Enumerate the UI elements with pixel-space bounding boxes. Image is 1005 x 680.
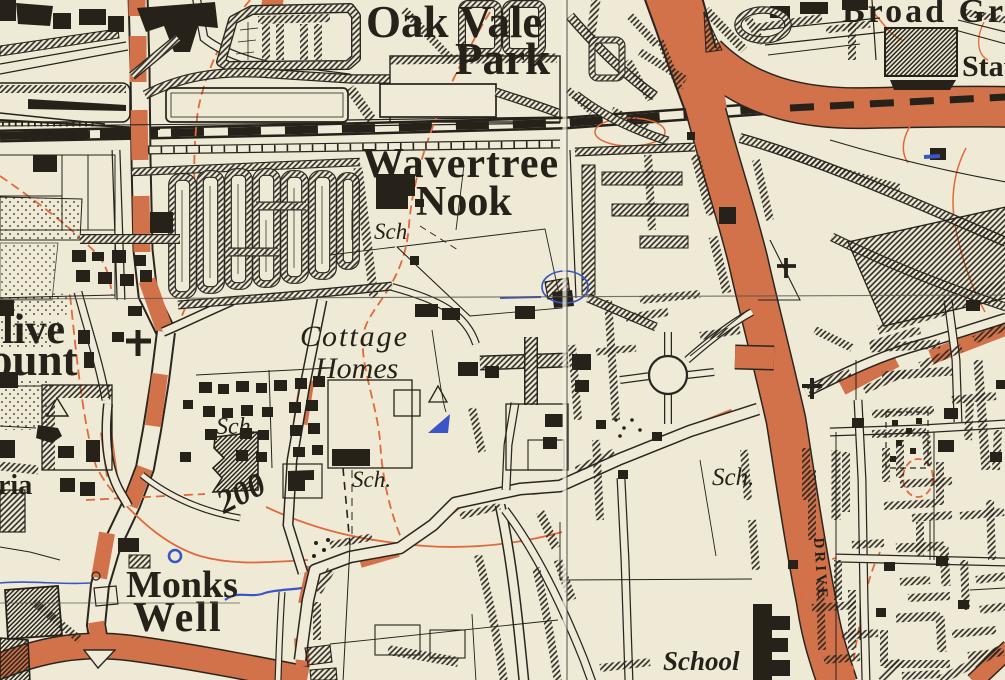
svg-text:Park: Park (455, 34, 550, 84)
svg-text:Cottage: Cottage (300, 320, 409, 353)
svg-text:Sch.: Sch. (712, 464, 754, 491)
svg-text:Sch.: Sch. (216, 414, 257, 440)
svg-text:Broad Gr: Broad Gr (842, 0, 1005, 30)
svg-text:School: School (663, 646, 740, 676)
svg-text:Nook: Nook (416, 179, 512, 225)
svg-text:ount: ount (0, 335, 78, 385)
svg-text:ria: ria (0, 470, 32, 501)
svg-text:Sch: Sch (374, 219, 407, 244)
svg-text:Sch.: Sch. (352, 467, 391, 492)
svg-text:Well: Well (133, 595, 223, 641)
svg-text:Stat: Stat (962, 50, 1005, 83)
svg-text:Homes: Homes (314, 352, 398, 385)
